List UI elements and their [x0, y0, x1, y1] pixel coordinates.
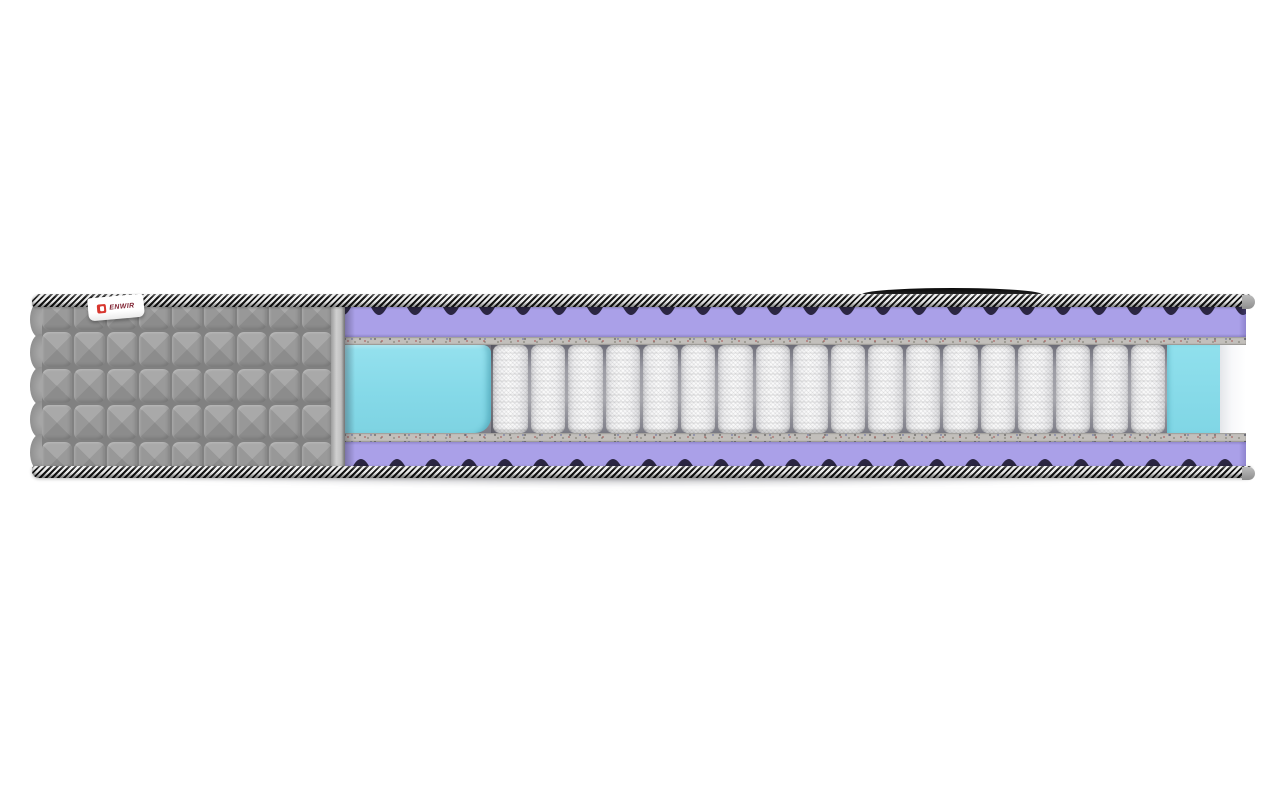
- quilt-cell: [204, 369, 234, 403]
- wave-foam-bottom-graphic: [343, 442, 1246, 468]
- border-tape-top: [32, 294, 1252, 307]
- quilt-cell: [42, 369, 72, 403]
- foam-top-end-cap: [1239, 305, 1246, 337]
- quilt-cell: [269, 369, 299, 403]
- foam-bottom-end-cap: [1239, 442, 1246, 468]
- quilt-cell: [42, 332, 72, 366]
- quilt-cell: [74, 405, 104, 439]
- quilt-cell: [107, 405, 137, 439]
- brand-logo-icon: [97, 304, 107, 314]
- inner-layers: [343, 305, 1246, 468]
- quilt-cell: [302, 405, 332, 439]
- pocket-spring: [981, 345, 1016, 433]
- quilt-cell: [269, 405, 299, 439]
- felt-pad-bottom: [343, 433, 1246, 442]
- quilt-cell: [172, 405, 202, 439]
- pocket-spring: [943, 345, 978, 433]
- pocket-spring: [756, 345, 791, 433]
- foam-block-left: [343, 345, 491, 433]
- brand-name: ENWIR: [109, 302, 135, 311]
- quilt-cell: [107, 332, 137, 366]
- pocket-spring: [718, 345, 753, 433]
- pocket-spring: [531, 345, 566, 433]
- quilt-cell: [269, 332, 299, 366]
- pocket-spring: [1056, 345, 1091, 433]
- quilt-cell: [107, 369, 137, 403]
- pocket-spring: [793, 345, 828, 433]
- tape-bottom-end-cap: [1242, 467, 1255, 480]
- quilt-cell: [204, 405, 234, 439]
- cover-cut-edge: [331, 294, 345, 478]
- foam-block-right: [1167, 345, 1220, 433]
- pocket-spring: [1018, 345, 1053, 433]
- pocket-spring: [643, 345, 678, 433]
- tape-top-end-cap: [1242, 295, 1255, 309]
- quilt-grid: [42, 296, 332, 476]
- quilt-cell: [237, 369, 267, 403]
- product-image: ENWIR: [0, 0, 1280, 800]
- pocket-spring: [568, 345, 603, 433]
- quilt-cell: [139, 405, 169, 439]
- mattress-cross-section: ENWIR: [30, 294, 1252, 478]
- quilt-cell: [42, 405, 72, 439]
- quilt-cell: [237, 332, 267, 366]
- quilt-cell: [302, 369, 332, 403]
- spring-core: [343, 345, 1246, 433]
- egg-crate-foam-bottom: [343, 442, 1246, 468]
- wave-foam-top-graphic: [343, 305, 1246, 337]
- pocket-spring: [493, 345, 528, 433]
- pocket-spring: [1093, 345, 1128, 433]
- pocket-spring: [868, 345, 903, 433]
- quilt-cell: [204, 332, 234, 366]
- felt-pad-top: [343, 337, 1246, 345]
- quilt-cell: [237, 405, 267, 439]
- pocket-spring: [906, 345, 941, 433]
- pocket-spring: [1131, 345, 1166, 433]
- pocket-spring: [831, 345, 866, 433]
- quilt-cell: [172, 369, 202, 403]
- border-tape-bottom: [32, 466, 1252, 478]
- quilt-cell: [74, 369, 104, 403]
- pocket-spring: [681, 345, 716, 433]
- pocket-spring-row: [491, 345, 1167, 433]
- core-end-face: [1220, 345, 1246, 433]
- brand-tag: ENWIR: [87, 294, 145, 322]
- egg-crate-foam-top: [343, 305, 1246, 337]
- quilt-cell: [74, 332, 104, 366]
- quilt-cell: [139, 369, 169, 403]
- quilted-cover: [30, 294, 345, 478]
- quilt-cell: [139, 332, 169, 366]
- quilt-cell: [302, 332, 332, 366]
- quilt-cell: [172, 332, 202, 366]
- pocket-spring: [606, 345, 641, 433]
